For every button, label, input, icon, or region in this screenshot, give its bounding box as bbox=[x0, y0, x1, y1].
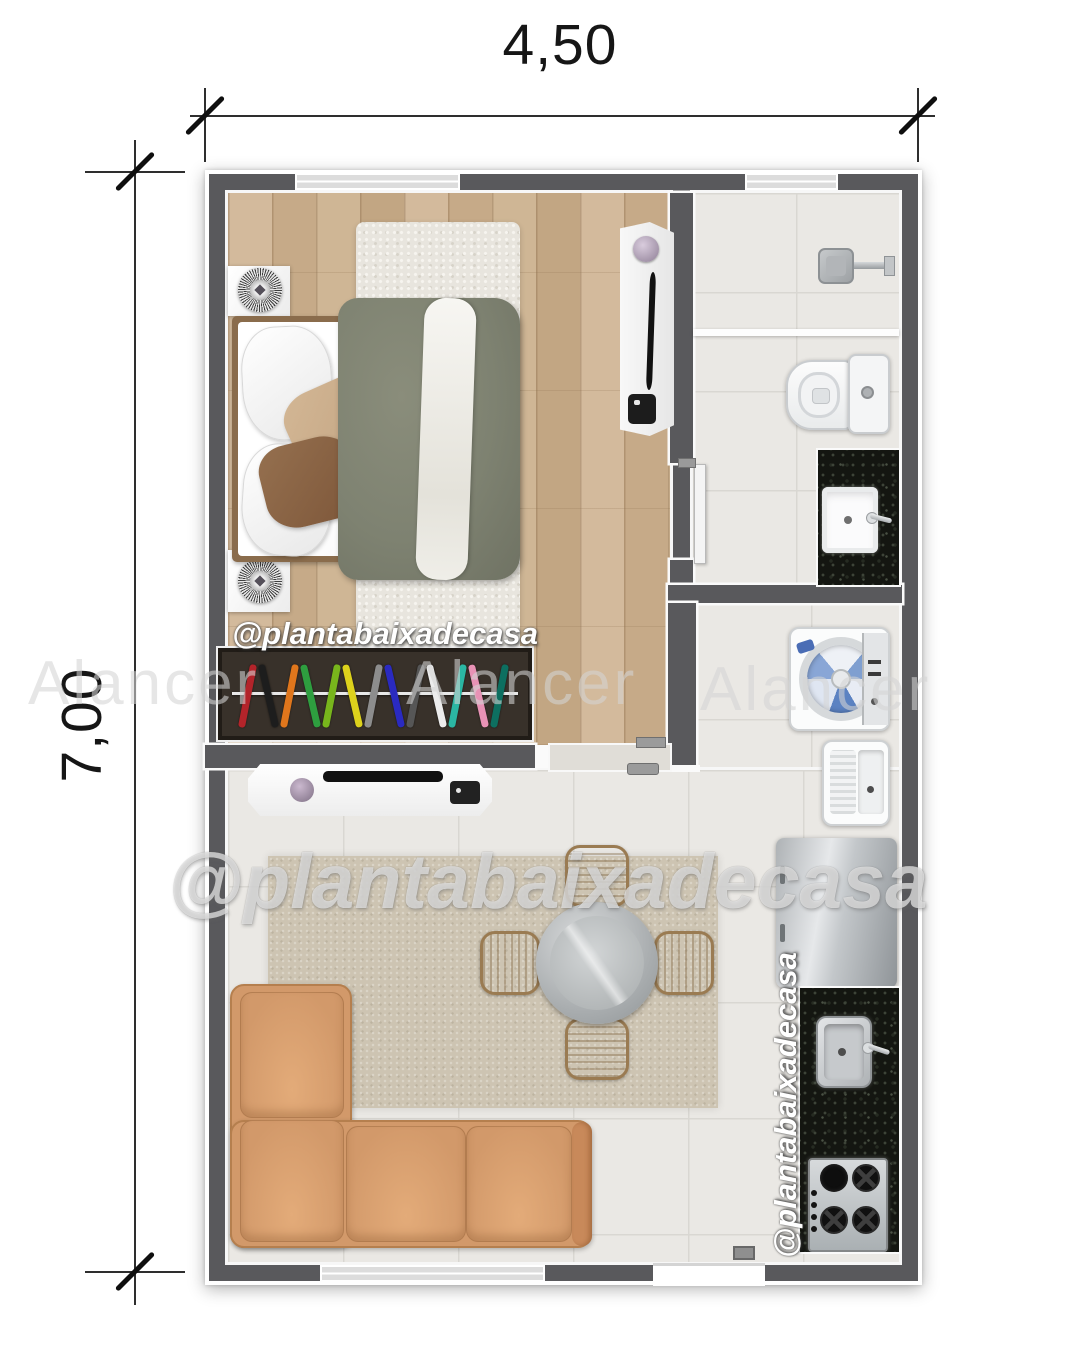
clothes-hanger bbox=[364, 664, 383, 728]
wall-end-cap bbox=[535, 745, 550, 768]
sofa-cushion bbox=[346, 1126, 466, 1242]
wardrobe-device bbox=[628, 394, 656, 424]
sofa-armrest bbox=[572, 1122, 592, 1246]
laundry-basin bbox=[858, 750, 884, 814]
dining-chair bbox=[654, 931, 714, 995]
width-dimension-label: 4,50 bbox=[400, 12, 720, 78]
stove-knob bbox=[811, 1190, 817, 1196]
sofa-cushion bbox=[466, 1126, 572, 1242]
laundry-living-wall bbox=[668, 603, 696, 767]
dining-chair bbox=[565, 1018, 629, 1080]
stove-knob bbox=[811, 1214, 817, 1220]
top-dimension-extension-right bbox=[917, 88, 919, 162]
living-room-window bbox=[320, 1265, 545, 1282]
sofa-corner-cushion bbox=[240, 1120, 344, 1242]
entrance-door-stop bbox=[733, 1246, 755, 1260]
dining-table-glass-top bbox=[550, 916, 644, 1010]
sofa-cushion bbox=[240, 992, 344, 1118]
device-light bbox=[634, 400, 640, 405]
table-lamp-icon bbox=[238, 559, 282, 603]
decor-object bbox=[290, 778, 314, 802]
door-track-hardware bbox=[636, 737, 666, 748]
device-light bbox=[456, 788, 461, 793]
clothes-hanger bbox=[384, 664, 405, 728]
entrance-door-opening bbox=[653, 1263, 765, 1286]
shower-wall-bracket bbox=[884, 256, 895, 276]
bed-sheet-throw bbox=[415, 297, 477, 581]
laundry-washboard bbox=[830, 750, 856, 814]
stove-burner bbox=[820, 1206, 848, 1234]
tv-icon bbox=[323, 771, 443, 782]
table-lamp-icon bbox=[238, 268, 282, 312]
bedroom-window bbox=[295, 173, 460, 190]
instagram-handle-watermark: @plantabaixadecasa bbox=[168, 838, 928, 927]
artist-watermark: Alancer bbox=[28, 648, 259, 719]
bathroom-wall-stub bbox=[670, 560, 693, 585]
top-dimension-extension-left bbox=[204, 88, 206, 162]
instagram-handle-watermark: @plantabaixadecasa bbox=[232, 616, 538, 652]
wardrobe-knob bbox=[633, 236, 659, 262]
top-dimension-line bbox=[190, 115, 935, 117]
sink-drain bbox=[838, 1048, 846, 1056]
artist-watermark: Alancer bbox=[406, 648, 637, 719]
clothes-hanger bbox=[322, 664, 341, 728]
clothes-hanger bbox=[300, 664, 321, 728]
shower-head-plate bbox=[826, 256, 846, 276]
stove-knob bbox=[811, 1202, 817, 1208]
sink-drain bbox=[844, 516, 852, 524]
stove-burner bbox=[852, 1206, 880, 1234]
toilet-flush-button bbox=[861, 386, 874, 399]
door-hinge-hardware bbox=[678, 458, 696, 468]
bathroom-window bbox=[745, 173, 838, 190]
media-device bbox=[450, 781, 480, 804]
instagram-handle-watermark: @plantabaixadecasa bbox=[768, 952, 804, 1258]
clothes-hanger bbox=[258, 664, 279, 728]
door-track-hardware bbox=[627, 763, 659, 775]
stove-burner bbox=[852, 1164, 880, 1192]
left-dimension-line bbox=[134, 140, 136, 1305]
bathroom-laundry-wall bbox=[668, 585, 902, 603]
stove-burner bbox=[820, 1164, 848, 1192]
shower-glass-partition bbox=[693, 329, 899, 336]
toilet-drain bbox=[812, 388, 830, 404]
shower-arm bbox=[854, 262, 886, 269]
bathroom-door-leaf bbox=[694, 464, 706, 564]
tub-drain bbox=[867, 786, 874, 793]
dining-chair bbox=[480, 931, 540, 995]
artist-watermark: Alancer bbox=[700, 654, 931, 725]
clothes-hanger bbox=[280, 664, 299, 728]
stove-knob bbox=[811, 1226, 817, 1232]
clothes-hanger bbox=[342, 664, 363, 728]
floor-plan-image: 4,50 7,00 bbox=[0, 0, 1074, 1371]
